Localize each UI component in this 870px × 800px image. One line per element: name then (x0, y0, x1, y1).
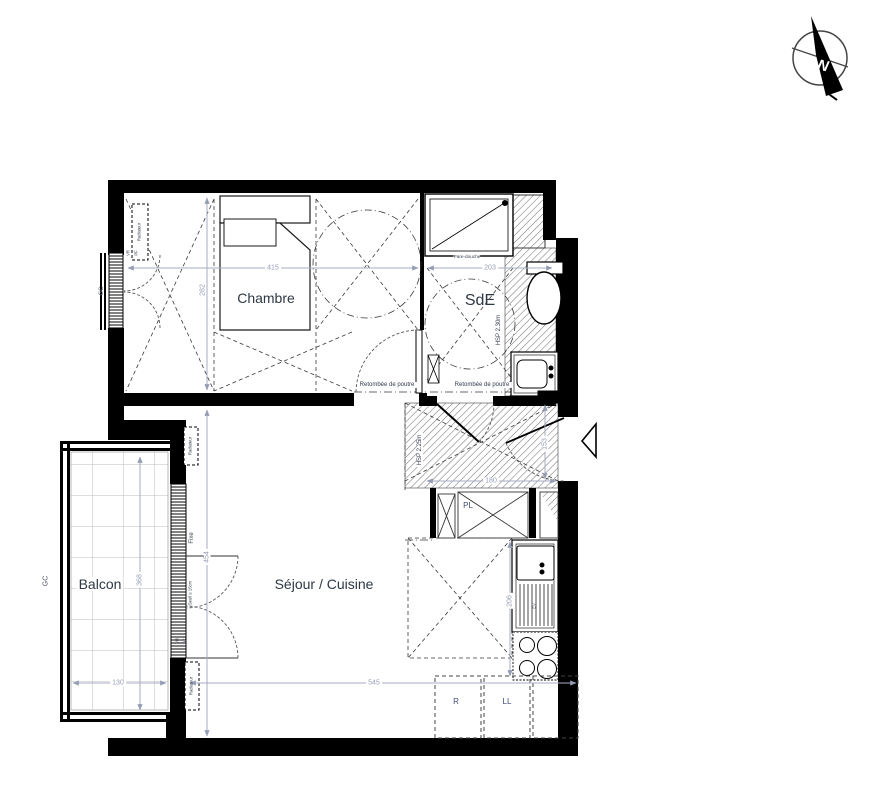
toilet (527, 262, 563, 324)
dim-chambre-depth: 282 (200, 282, 207, 298)
room-label-balcon: Balcon (77, 577, 124, 591)
dim-balcon-depth: 368 (137, 572, 144, 588)
guardrail-note-chambre: GC (99, 287, 105, 296)
room-label-sde: SdE (465, 293, 495, 309)
beam-note-1: Retombée de poutre (358, 382, 417, 388)
vanity-sink (511, 352, 558, 396)
dim-hall-width: 180 (483, 478, 499, 485)
dim-chambre-width: 415 (265, 265, 281, 272)
ceiling-height-sde: HSP 2.30m (496, 313, 502, 348)
shower-screen-note: Pare-douche (454, 255, 481, 260)
shutter-note-sejour: VR (176, 638, 180, 644)
dim-hall-depth: 153 (542, 436, 549, 452)
dim-balcon-width: 130 (110, 680, 126, 687)
radiator-note-sejour-2: Radiateur (190, 677, 194, 695)
radiator-note-sejour-1: Radiateur (189, 437, 193, 455)
closet-boxes (438, 492, 558, 538)
dim-sejour-width: 545 (366, 680, 382, 687)
french-window-note-chambre: PF (135, 250, 139, 255)
appliance-boxes (435, 676, 578, 738)
closet-label: PL (463, 502, 473, 510)
ceiling-height-hall: HSP 2.25m (417, 433, 423, 468)
dim-kitchen-run: 206 (507, 593, 514, 609)
floor-plan-linework (0, 0, 870, 800)
dim-sejour-depth: 454 (204, 549, 211, 565)
dim-sde-width: 203 (482, 265, 498, 272)
shutter-note-chambre: VR (127, 250, 131, 256)
floor-plan-canvas: Chambre SdE Séjour / Cuisine Balcon Reto… (0, 0, 870, 800)
threshold-note: Seuil ≤ 15cm (189, 581, 193, 605)
entry-arrow (582, 424, 596, 457)
kitchen-sink-unit (512, 540, 558, 632)
bed (220, 196, 310, 330)
fridge-label: R (453, 698, 459, 706)
washing-machine-label: LL (503, 698, 512, 706)
room-label-sejour-cuisine: Séjour / Cuisine (275, 577, 374, 591)
sink-unit-label: EV (533, 603, 537, 609)
shower-tray (425, 194, 513, 256)
french-window-note-sejour: PF (184, 638, 188, 643)
room-label-chambre: Chambre (237, 291, 295, 305)
beam-note-2: Retombée de poutre (453, 382, 512, 388)
cooktop (513, 632, 558, 680)
guardrail-note-balcon: GC (43, 576, 50, 587)
vent-box (428, 355, 439, 383)
radiator-note-chambre: Radiateur (138, 223, 142, 241)
fixed-pane-note: Fixe (189, 532, 195, 543)
